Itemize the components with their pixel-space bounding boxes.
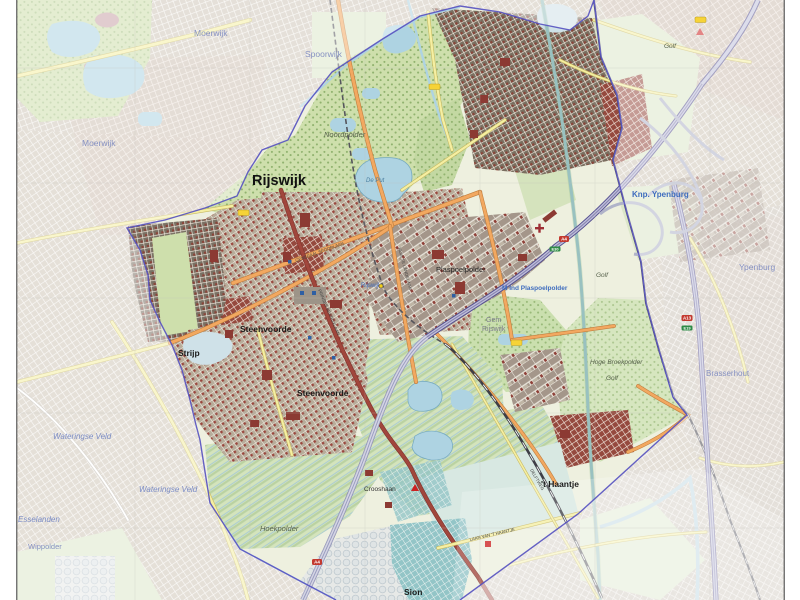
svg-text:Golf: Golf — [606, 375, 619, 382]
svg-text:Gem: Gem — [486, 317, 501, 324]
svg-text:Sion: Sion — [404, 587, 422, 597]
svg-text:Strijp: Strijp — [178, 348, 200, 358]
svg-text:Golf: Golf — [596, 272, 609, 279]
svg-text:Plaspoelpolder: Plaspoelpolder — [436, 265, 486, 274]
svg-text:Crooshaan: Crooshaan — [364, 486, 396, 493]
svg-text:Steenvoorde: Steenvoorde — [297, 388, 349, 398]
svg-text:Golf: Golf — [664, 43, 677, 50]
svg-text:Steenvoorde: Steenvoorde — [240, 324, 292, 334]
svg-text:Ypenburg: Ypenburg — [739, 262, 776, 272]
svg-text:A4: A4 — [314, 560, 320, 565]
svg-text:Wateringse Veld: Wateringse Veld — [139, 485, 198, 494]
svg-text:De Put: De Put — [366, 178, 385, 184]
svg-text:Spoorwijk: Spoorwijk — [305, 49, 343, 59]
svg-text:Esselanden: Esselanden — [18, 515, 60, 524]
svg-text:Hoekpolder: Hoekpolder — [260, 524, 299, 533]
svg-text:Wippolder: Wippolder — [28, 542, 62, 551]
svg-text:Moerwijk: Moerwijk — [82, 138, 116, 148]
svg-text:Hoge Broekpolder: Hoge Broekpolder — [590, 359, 643, 366]
svg-text:A4: A4 — [561, 237, 567, 242]
svg-text:E30: E30 — [551, 246, 559, 251]
svg-text:Wateringse Veld: Wateringse Veld — [53, 432, 112, 441]
svg-text:Rijswijk: Rijswijk — [252, 173, 307, 189]
svg-text:Rijswijk: Rijswijk — [482, 326, 506, 333]
svg-text:Knp. Ypenburg: Knp. Ypenburg — [632, 190, 689, 199]
svg-text:E19: E19 — [683, 325, 691, 330]
svg-text:Brasserhout: Brasserhout — [706, 369, 750, 378]
svg-text:A13: A13 — [683, 316, 692, 321]
svg-text:M Ind Plaspoelpolder: M Ind Plaspoelpolder — [502, 285, 568, 292]
svg-text:'t Haantje: 't Haantje — [541, 479, 579, 489]
svg-text:Noordpolder: Noordpolder — [324, 130, 366, 139]
svg-text:Moerwijk: Moerwijk — [194, 28, 228, 38]
